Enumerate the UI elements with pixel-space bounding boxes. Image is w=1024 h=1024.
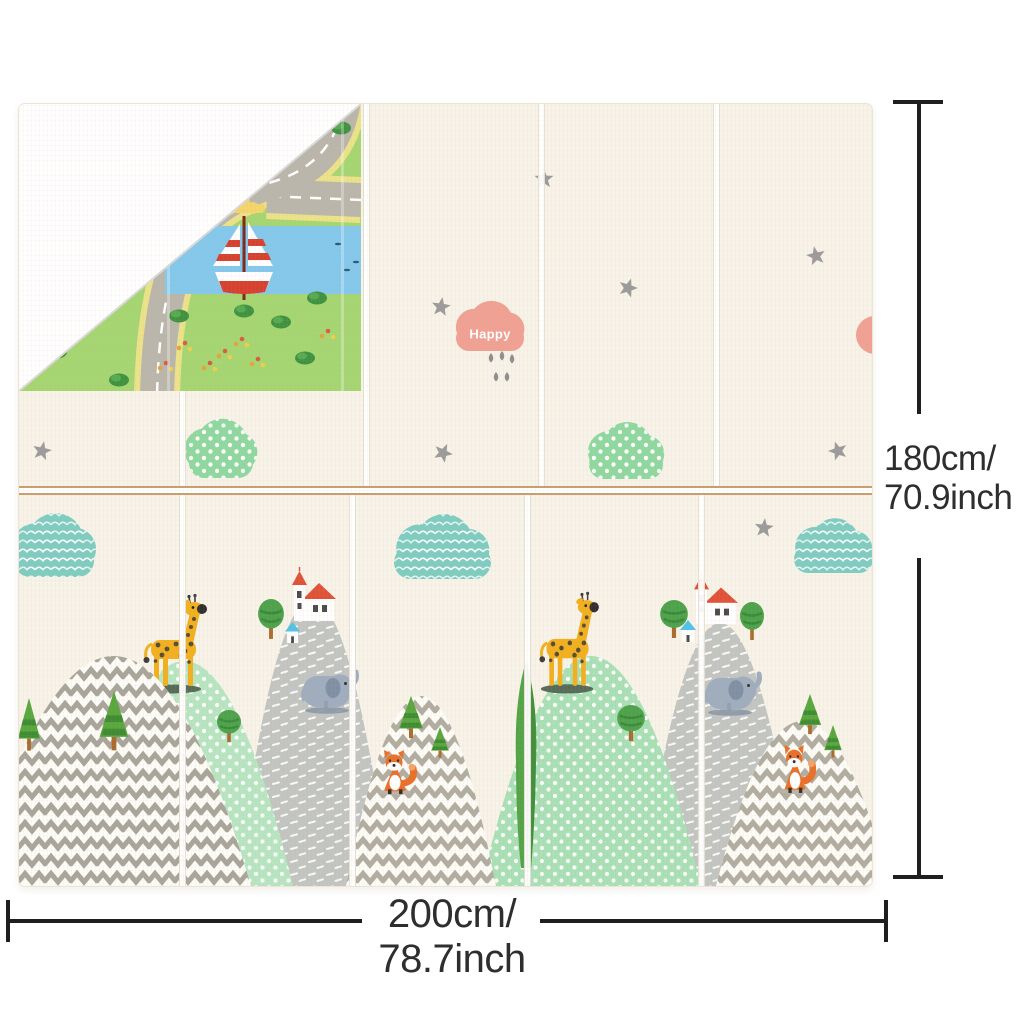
height-inch-value: 70.9inch [884,479,1012,518]
product-photo: Happy 180cm/ 70.9inch 200cm/ 78.7inch [0,0,1024,1024]
panel-seam [363,104,370,486]
width-inch-value: 78.7inch [312,937,592,982]
height-dimension-line-upper [917,100,921,414]
panel-seam [524,495,531,886]
fold-seam [19,486,872,495]
folded-corner-reverse-map [19,104,361,391]
width-dimension-right-cap [884,900,888,942]
height-cm-value: 180cm/ [884,440,1012,479]
panel-seam [713,104,720,486]
height-dimension-bottom-cap [893,875,943,879]
panel-seam [349,495,356,886]
panel-seam [538,104,545,486]
height-dimension-line-lower [917,558,921,878]
play-mat: Happy [18,103,873,887]
width-dimension-label: 200cm/ 78.7inch [312,892,592,982]
width-cm-value: 200cm/ [312,892,592,937]
panel-seam [698,495,705,886]
width-dimension-line-right [540,919,888,923]
height-dimension-label: 180cm/ 70.9inch [884,440,1012,517]
width-dimension-line-left [6,919,362,923]
panel-seam [179,495,186,886]
